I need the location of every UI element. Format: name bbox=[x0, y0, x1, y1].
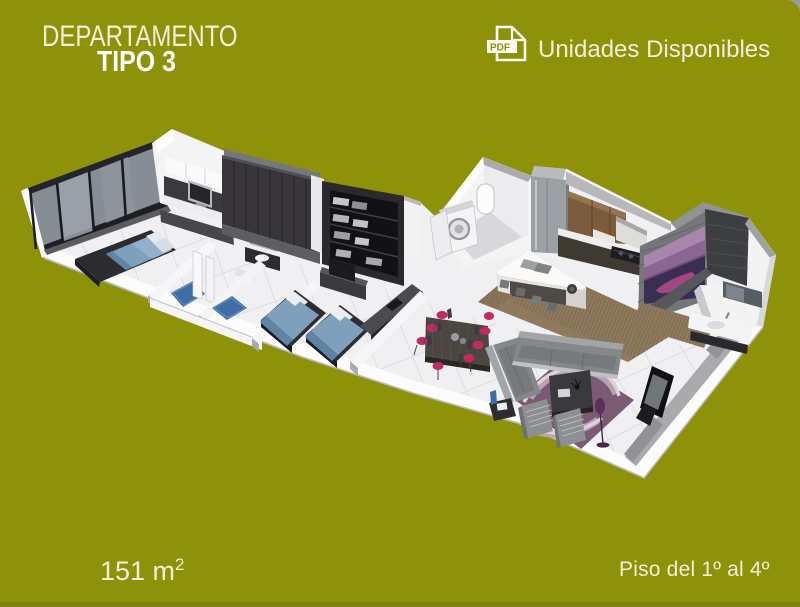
svg-text:PDF: PDF bbox=[490, 43, 510, 54]
